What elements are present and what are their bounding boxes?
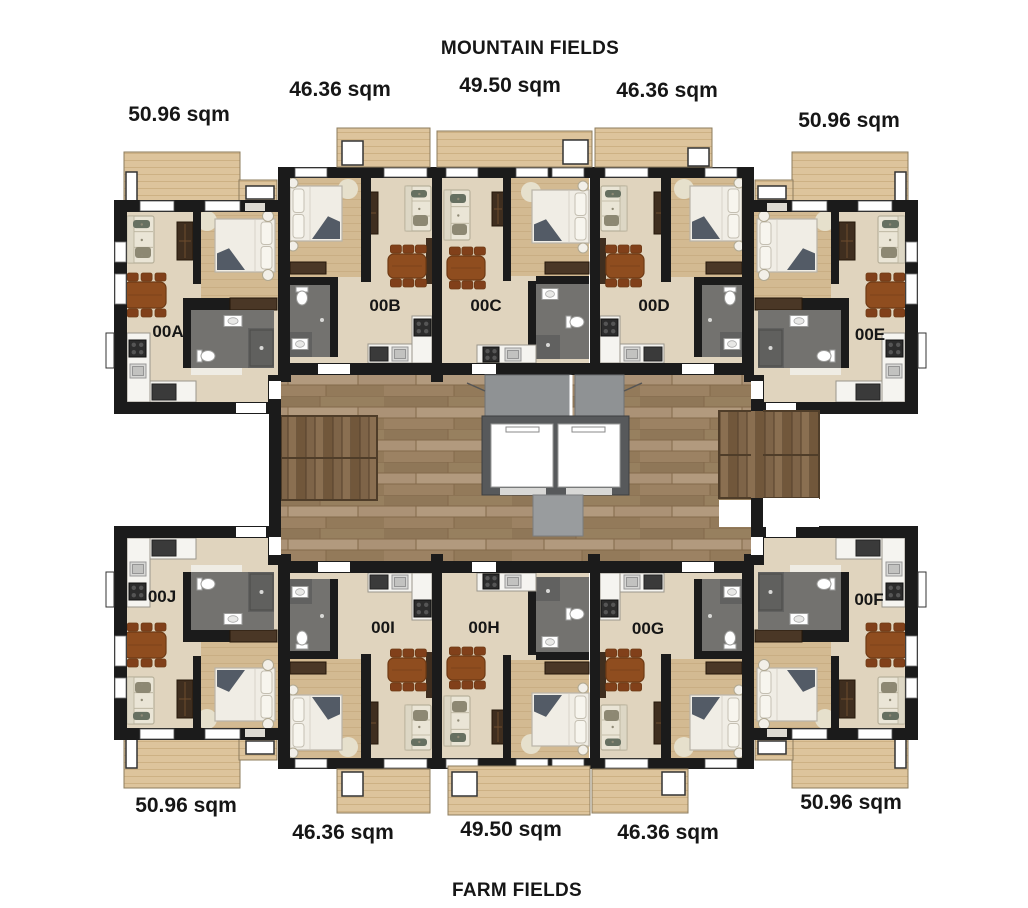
svg-text:46.36 sqm: 46.36 sqm	[289, 78, 391, 101]
svg-text:00D: 00D	[638, 296, 669, 315]
svg-text:50.96 sqm: 50.96 sqm	[800, 791, 902, 814]
svg-text:00C: 00C	[470, 296, 501, 315]
svg-text:00J: 00J	[148, 587, 176, 606]
svg-text:00A: 00A	[152, 322, 183, 341]
svg-text:00B: 00B	[369, 296, 400, 315]
svg-text:46.36 sqm: 46.36 sqm	[292, 821, 394, 844]
svg-text:46.36 sqm: 46.36 sqm	[617, 821, 719, 844]
svg-text:00E: 00E	[855, 325, 885, 344]
svg-text:50.96 sqm: 50.96 sqm	[128, 103, 230, 126]
svg-text:00G: 00G	[632, 619, 664, 638]
svg-text:MOUNTAIN FIELDS: MOUNTAIN FIELDS	[441, 38, 619, 59]
svg-text:FARM FIELDS: FARM FIELDS	[452, 880, 582, 901]
svg-text:50.96 sqm: 50.96 sqm	[798, 109, 900, 132]
svg-text:46.36 sqm: 46.36 sqm	[616, 79, 718, 102]
svg-text:00F: 00F	[854, 590, 883, 609]
svg-text:49.50 sqm: 49.50 sqm	[459, 74, 561, 97]
svg-text:50.96 sqm: 50.96 sqm	[135, 794, 237, 817]
svg-text:49.50 sqm: 49.50 sqm	[460, 818, 562, 841]
svg-text:00I: 00I	[371, 618, 395, 637]
svg-text:00H: 00H	[468, 618, 499, 637]
